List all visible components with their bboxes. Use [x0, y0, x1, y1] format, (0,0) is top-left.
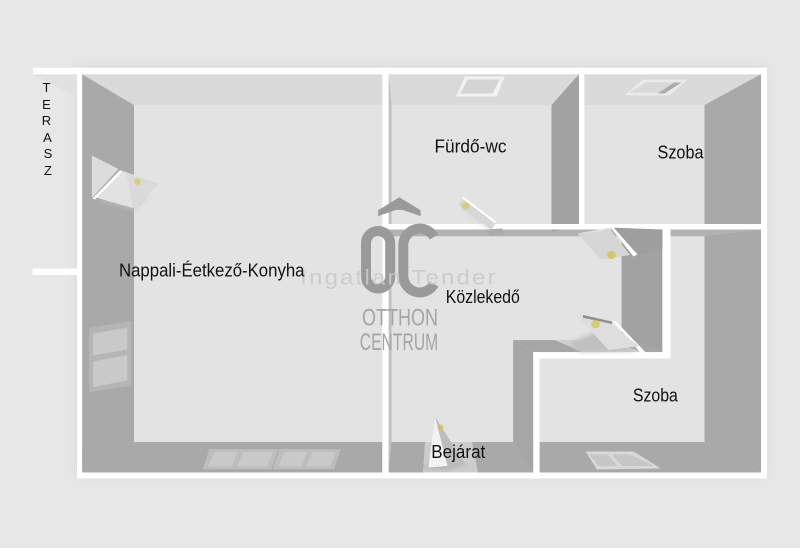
svg-text:E: E — [42, 97, 51, 112]
svg-text:Fürdő-wc: Fürdő-wc — [435, 137, 507, 157]
svg-text:R: R — [42, 113, 51, 128]
svg-text:Bejárat: Bejárat — [431, 442, 485, 462]
svg-text:Z: Z — [44, 163, 52, 178]
svg-text:A: A — [43, 130, 52, 145]
svg-text:S: S — [44, 146, 53, 161]
svg-text:Közlekedő: Közlekedő — [446, 287, 520, 307]
svg-text:Nappali-Éetkező-Konyha: Nappali-Éetkező-Konyha — [119, 261, 305, 281]
svg-text:OTTHON: OTTHON — [362, 305, 438, 332]
svg-text:CENTRUM: CENTRUM — [360, 329, 439, 356]
svg-text:Szoba: Szoba — [658, 143, 705, 163]
svg-text:Szoba: Szoba — [633, 386, 679, 406]
svg-text:T: T — [43, 80, 51, 95]
